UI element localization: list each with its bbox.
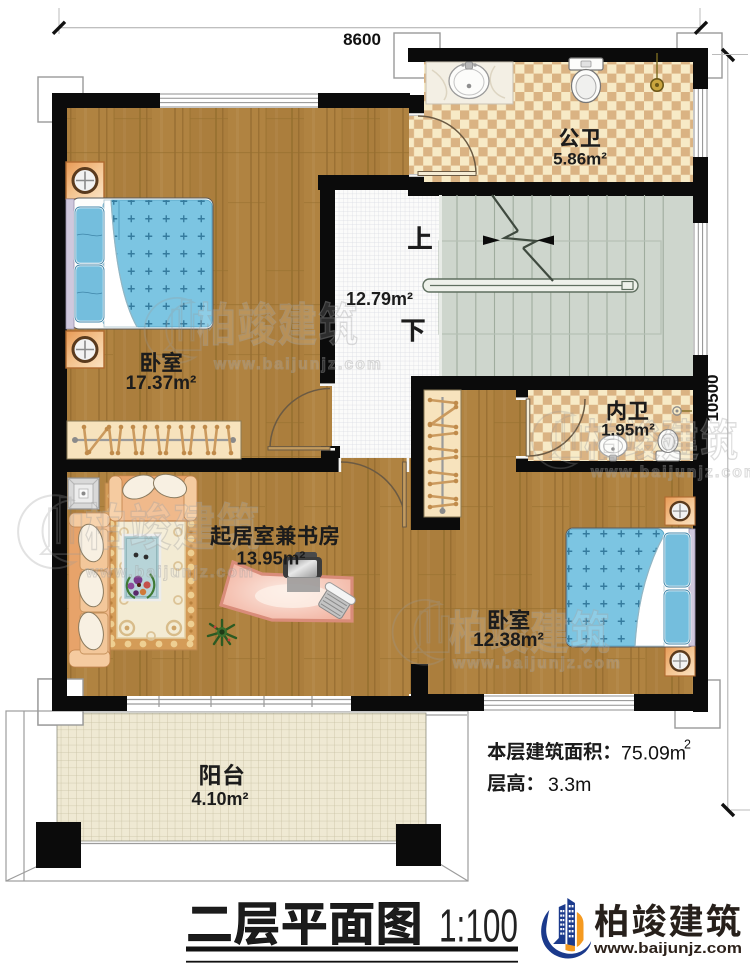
svg-text:12.38m²: 12.38m² xyxy=(473,630,544,651)
svg-text:www.baijunjz.com: www.baijunjz.com xyxy=(213,356,383,373)
svg-text:www.baijunjz.com: www.baijunjz.com xyxy=(85,564,255,581)
svg-text:17.37m²: 17.37m² xyxy=(126,373,197,394)
svg-text:2: 2 xyxy=(684,738,691,752)
svg-text:www.baijunjz.com: www.baijunjz.com xyxy=(593,941,742,957)
svg-text:www.baijunjz.com: www.baijunjz.com xyxy=(590,464,750,481)
svg-text:75.09m: 75.09m xyxy=(621,743,686,765)
svg-text:13.95m²: 13.95m² xyxy=(237,548,306,569)
svg-text:4.10m²: 4.10m² xyxy=(191,789,248,809)
svg-text:1:100: 1:100 xyxy=(439,900,518,952)
svg-text:1.95m²: 1.95m² xyxy=(601,421,655,440)
svg-text:10500: 10500 xyxy=(703,374,722,421)
svg-text:12.79m²: 12.79m² xyxy=(346,289,413,309)
svg-text:3.3m: 3.3m xyxy=(548,774,591,796)
svg-text:5.86m²: 5.86m² xyxy=(553,150,607,169)
svg-text:8600: 8600 xyxy=(343,30,381,49)
svg-text:www.baijunjz.com: www.baijunjz.com xyxy=(452,655,622,672)
